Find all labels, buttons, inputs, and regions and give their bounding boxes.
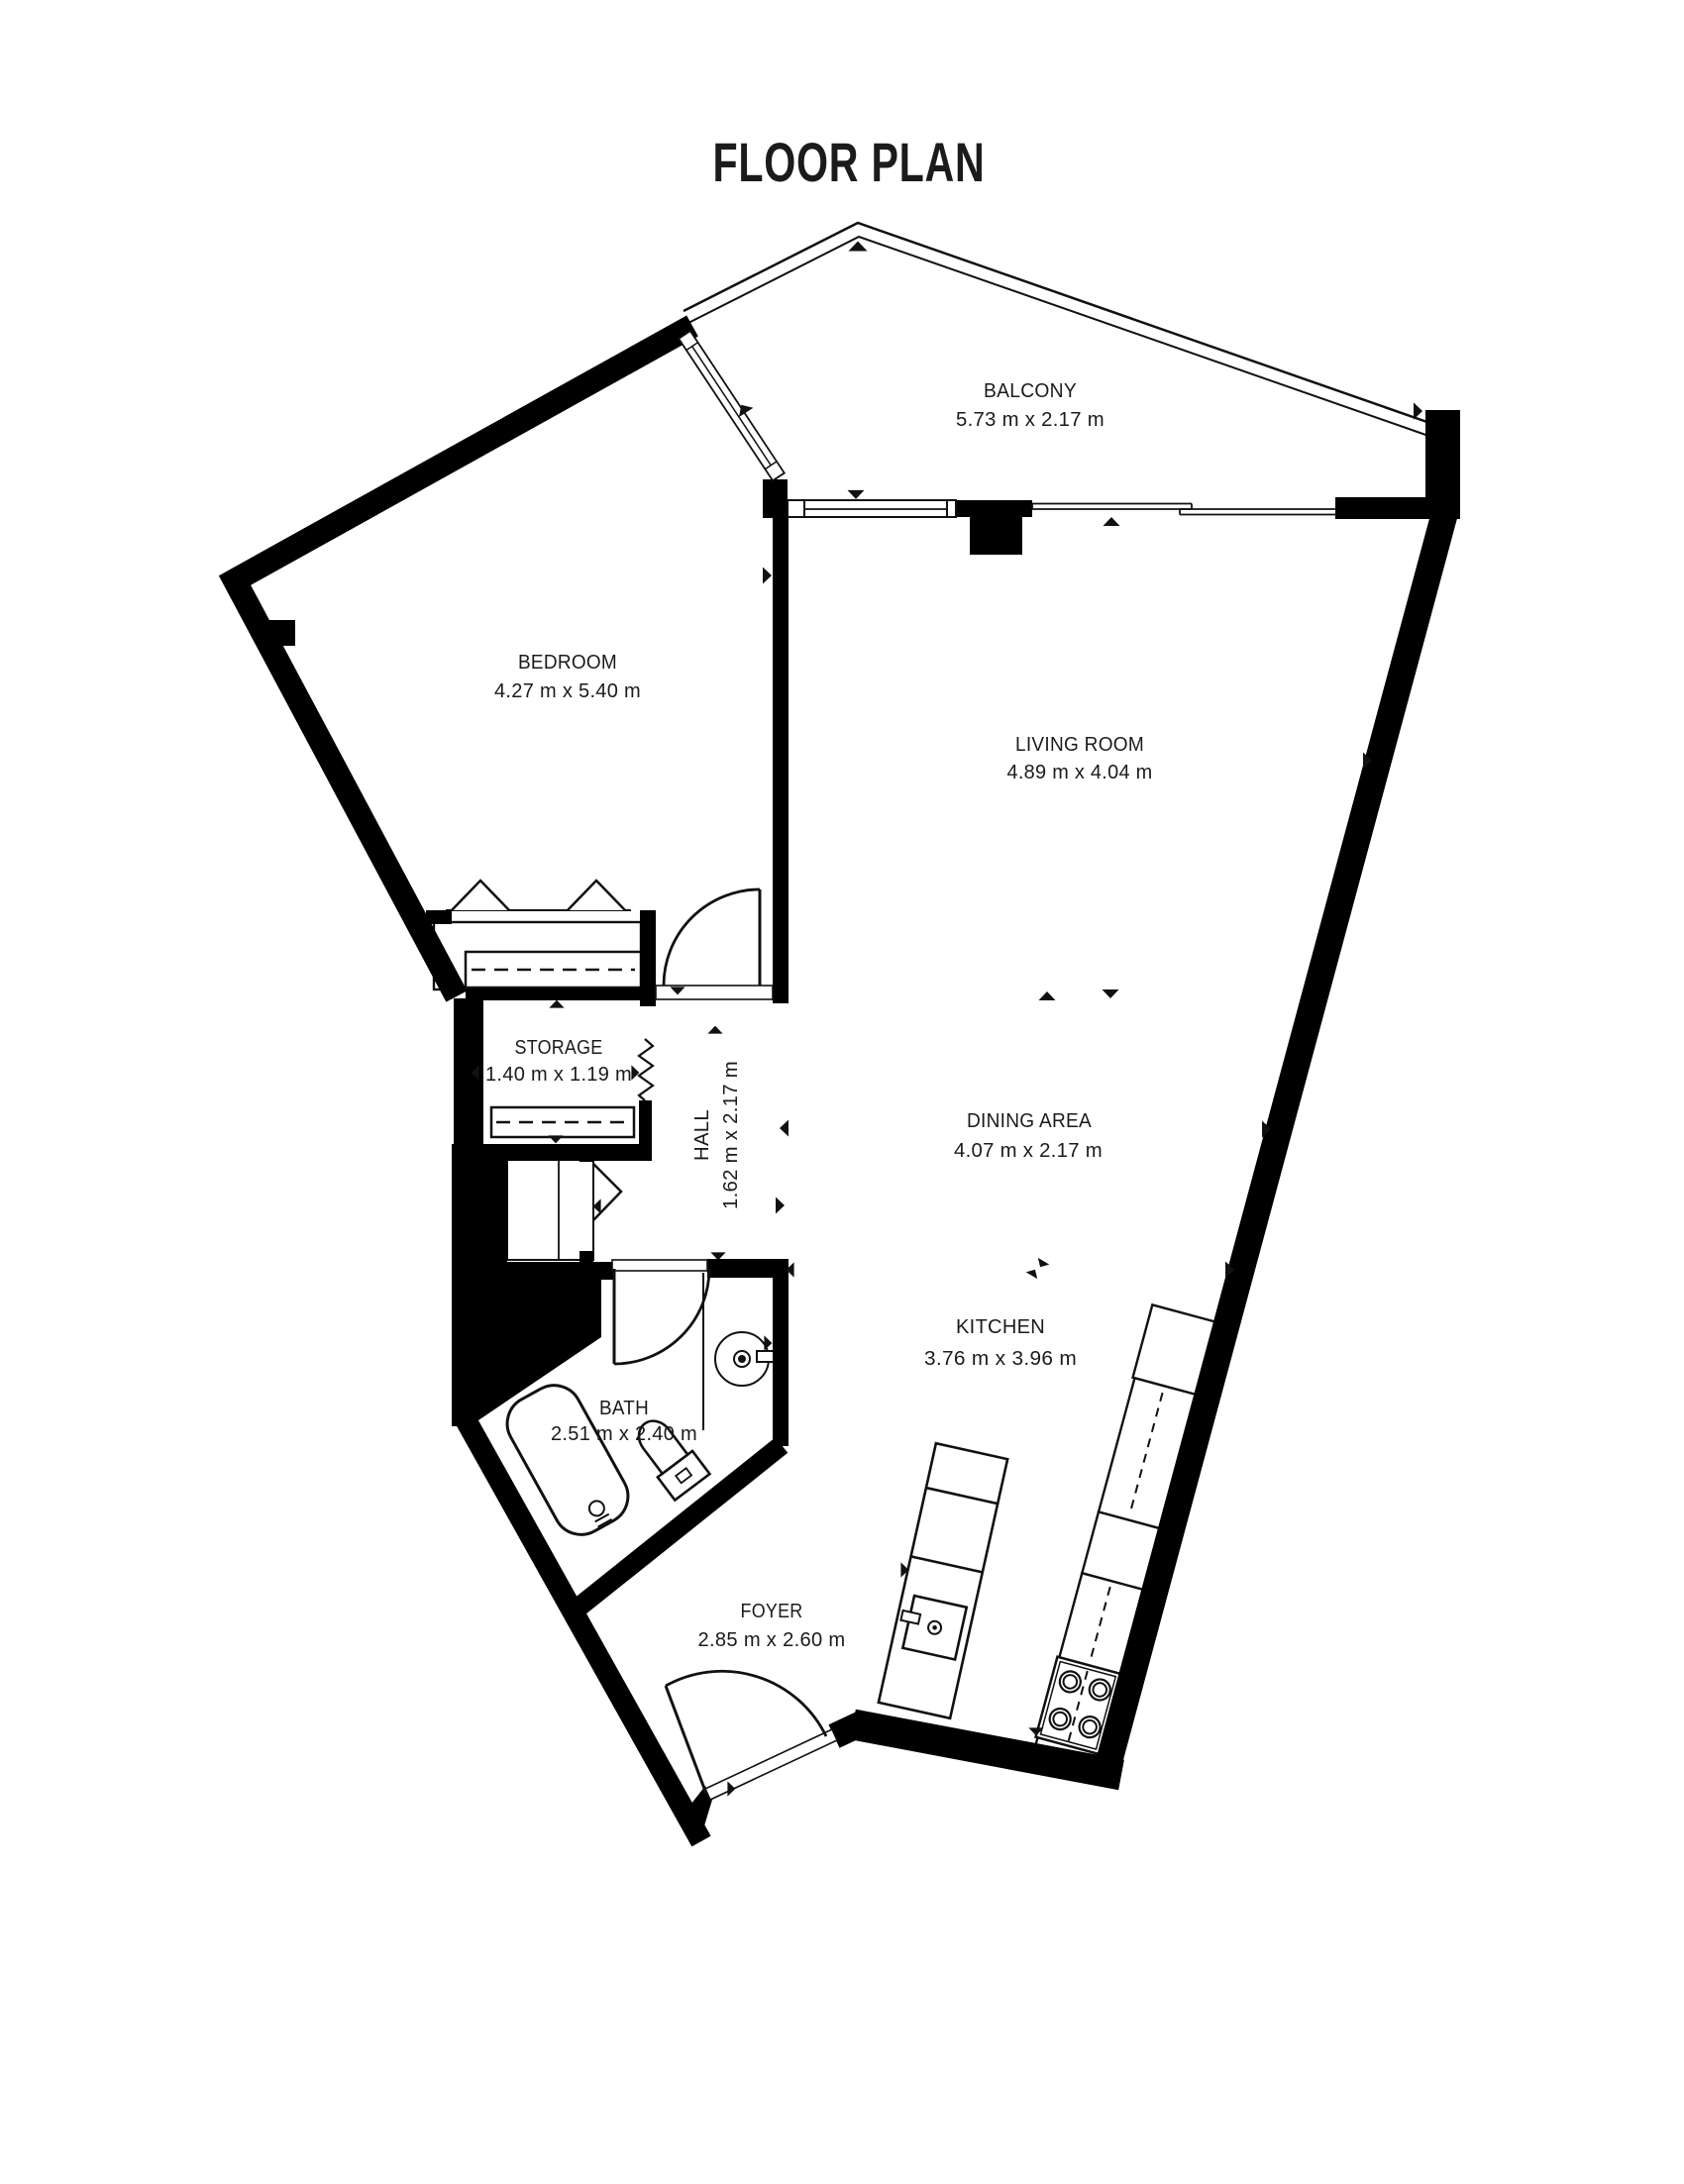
svg-text:BALCONY: BALCONY [984,379,1077,402]
svg-text:BATH: BATH [599,1397,649,1419]
svg-text:FLOOR PLAN: FLOOR PLAN [713,131,986,193]
svg-text:4.07 m x 2.17 m: 4.07 m x 2.17 m [954,1139,1103,1162]
svg-text:FOYER: FOYER [741,1600,803,1622]
svg-text:2.85 m x 2.60 m: 2.85 m x 2.60 m [698,1628,846,1651]
svg-text:1.40 m x 1.19 m: 1.40 m x 1.19 m [485,1063,632,1086]
svg-text:STORAGE: STORAGE [515,1036,603,1059]
svg-text:BEDROOM: BEDROOM [518,651,617,674]
svg-text:LIVING ROOM: LIVING ROOM [1015,733,1144,756]
svg-text:1.62 m x 2.17 m: 1.62 m x 2.17 m [719,1061,742,1209]
svg-text:3.76 m x 3.96 m: 3.76 m x 3.96 m [924,1347,1077,1370]
svg-text:4.89 m x 4.04 m: 4.89 m x 4.04 m [1007,761,1153,783]
svg-text:HALL: HALL [690,1109,713,1161]
svg-text:KITCHEN: KITCHEN [956,1315,1045,1338]
svg-text:2.51 m x 2.40 m: 2.51 m x 2.40 m [551,1422,697,1445]
svg-text:4.27 m x 5.40 m: 4.27 m x 5.40 m [494,679,641,702]
svg-text:DINING AREA: DINING AREA [967,1109,1092,1132]
svg-text:5.73 m x 2.17 m: 5.73 m x 2.17 m [956,408,1105,431]
